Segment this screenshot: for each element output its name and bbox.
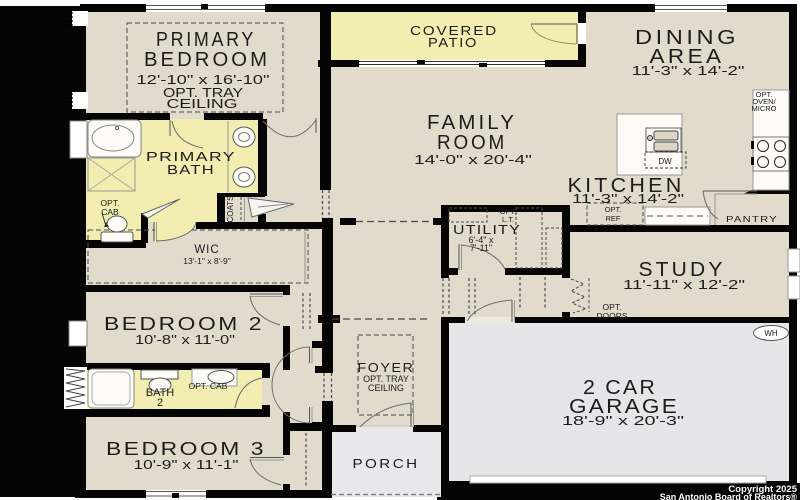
svg-text:OPT.: OPT. — [605, 205, 622, 214]
svg-text:12'-10" x 16'-10": 12'-10" x 16'-10" — [137, 72, 271, 87]
svg-text:COATS: COATS — [226, 196, 235, 223]
svg-text:18'-9" x 20'-3": 18'-9" x 20'-3" — [562, 413, 685, 428]
svg-text:MICRO: MICRO — [752, 104, 777, 113]
svg-text:San Antonio Board of Realtors®: San Antonio Board of Realtors® — [660, 492, 798, 500]
svg-text:FOYER: FOYER — [358, 361, 415, 375]
svg-text:WH: WH — [764, 329, 778, 338]
svg-text:REF: REF — [606, 214, 621, 223]
svg-text:FAMILY: FAMILY — [427, 112, 517, 134]
svg-text:BEDROOM 3: BEDROOM 3 — [106, 439, 266, 459]
svg-text:DW: DW — [658, 157, 672, 166]
svg-text:2: 2 — [157, 397, 163, 409]
svg-text:PANTRY: PANTRY — [726, 214, 778, 224]
svg-text:PRIMARY: PRIMARY — [146, 150, 236, 164]
svg-text:11'-11" x 12'-2": 11'-11" x 12'-2" — [623, 277, 746, 292]
svg-text:10'-9" x 11'-1": 10'-9" x 11'-1" — [134, 458, 239, 472]
svg-text:PATIO: PATIO — [428, 35, 478, 50]
svg-text:OPT. CAB: OPT. CAB — [189, 381, 228, 391]
svg-text:PRIMARY: PRIMARY — [156, 29, 256, 51]
svg-text:L.T.: L.T. — [502, 215, 514, 224]
svg-text:10'-8" x 11'-0": 10'-8" x 11'-0" — [135, 333, 235, 347]
svg-text:14'-0" x 20'-4": 14'-0" x 20'-4" — [414, 152, 533, 167]
svg-text:DOORS: DOORS — [596, 311, 628, 321]
svg-text:BEDROOM 2: BEDROOM 2 — [104, 314, 264, 334]
svg-text:13'-1" x 8'-9": 13'-1" x 8'-9" — [183, 256, 231, 266]
svg-text:7'-11": 7'-11" — [470, 243, 492, 253]
svg-text:CAB: CAB — [101, 207, 119, 217]
svg-text:11'-3" x 14'-2": 11'-3" x 14'-2" — [632, 63, 746, 78]
svg-text:PORCH: PORCH — [353, 457, 420, 471]
svg-text:CEILING: CEILING — [368, 383, 404, 393]
svg-text:WIC: WIC — [194, 244, 219, 256]
svg-text:ROOM: ROOM — [437, 132, 507, 154]
svg-text:11'-3" x 14'-2": 11'-3" x 14'-2" — [572, 191, 685, 206]
svg-text:BATH: BATH — [167, 163, 215, 177]
svg-text:BEDROOM: BEDROOM — [144, 49, 270, 71]
svg-text:CEILING: CEILING — [167, 97, 238, 111]
